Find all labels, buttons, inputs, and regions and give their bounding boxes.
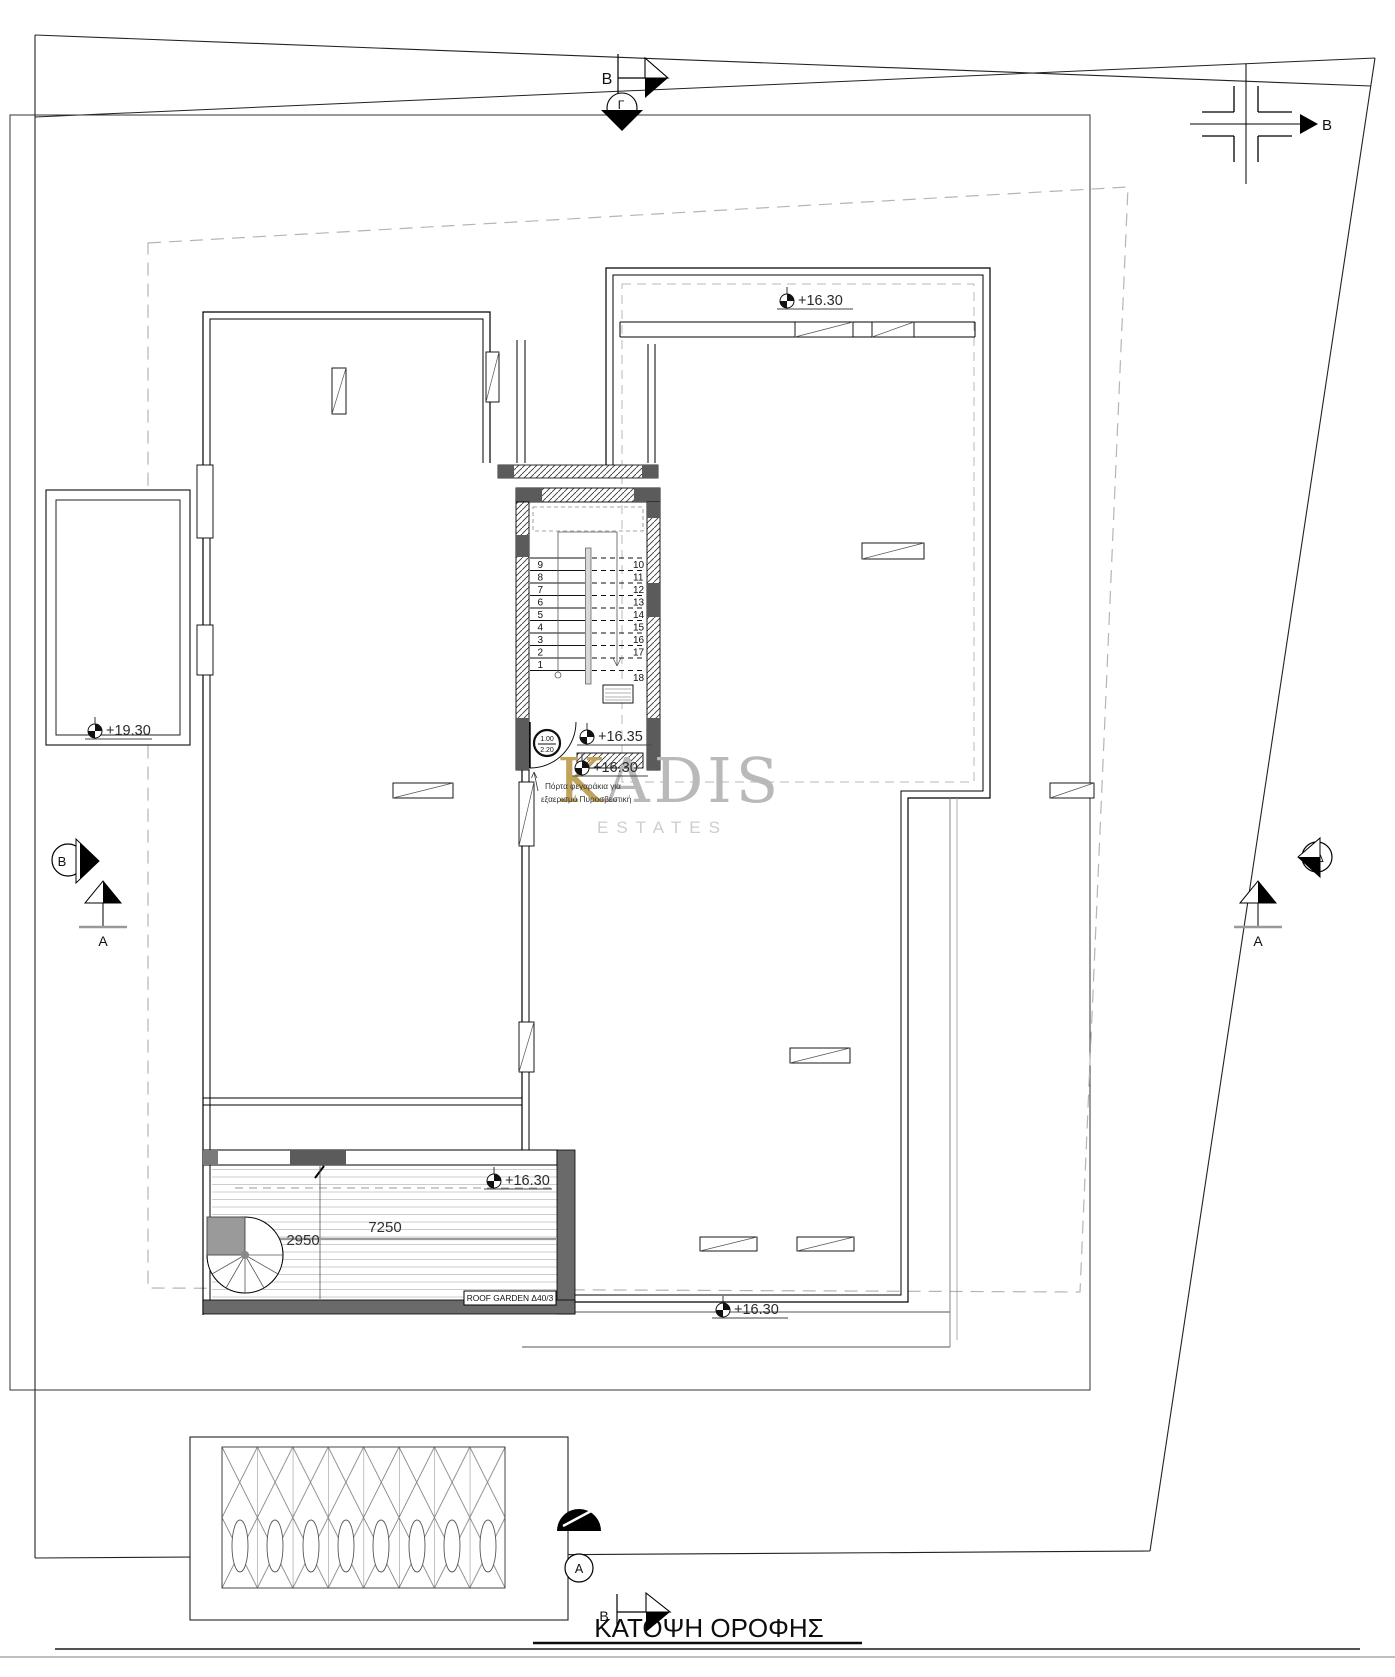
spiral-stair (207, 1217, 283, 1293)
level-value: +19.30 (106, 723, 151, 739)
roof-vent (797, 1237, 854, 1251)
watermark-letter: K (557, 744, 605, 817)
roof-garden-label-text: ROOF GARDEN Δ40/3 (467, 1293, 554, 1303)
roof-vent (1050, 783, 1094, 798)
stair-number: 3 (537, 635, 543, 646)
dim-depth: 2950 (286, 1232, 319, 1249)
section-letter: B (599, 1608, 608, 1624)
roof-vent (872, 322, 914, 337)
stair-number: 18 (633, 673, 645, 684)
stair-number: 7 (537, 585, 543, 596)
section-marker-east-delta: Δ (1298, 838, 1332, 877)
stair-number: 17 (633, 648, 645, 659)
stair-number: 14 (633, 610, 645, 621)
watermark-subtitle: ESTATES (597, 818, 728, 837)
stair-number: 15 (633, 623, 645, 634)
stair-number: 12 (633, 585, 645, 596)
roof-garden-label: ROOF GARDEN Δ40/3 (464, 1291, 556, 1305)
section-letter: A (1253, 933, 1263, 949)
roof-vent (393, 783, 453, 798)
door-note-line2: εξαερισμό Πυροσβεστική (541, 795, 632, 804)
level-value: +16.30 (505, 1173, 550, 1189)
roof-plan-sheet: 9 8 7 6 5 4 3 2 1 10 11 12 13 14 15 16 1… (0, 0, 1395, 1677)
section-letter: B (58, 854, 67, 869)
sheet-title: ΚΑΤΟΨΗ ΟΡΟΦΗΣ (533, 1613, 862, 1643)
roof-vent (795, 322, 853, 337)
level-value: +16.35 (598, 729, 643, 745)
stair-number: 2 (537, 648, 543, 659)
stair-number: 10 (633, 560, 645, 571)
section-letter: A (575, 1562, 584, 1576)
stair-number: 16 (633, 635, 645, 646)
level-value: +16.30 (798, 293, 843, 309)
watermark-brand: KADIS (557, 744, 782, 817)
roof-vent (700, 1237, 757, 1251)
section-letter: A (98, 933, 108, 949)
elevation-marker: +16.35 (577, 723, 652, 745)
elevation-marker: +16.30 (712, 1296, 788, 1318)
stair-number: 1 (537, 660, 543, 671)
section-letter: Γ (618, 98, 625, 112)
door-lintel (290, 1150, 346, 1165)
door-width: 1.00 (540, 736, 554, 743)
stair-number: 11 (633, 573, 644, 584)
lower-terrace-edges (522, 798, 957, 1347)
section-letter: B (602, 71, 613, 88)
section-marker-west-b: B (52, 839, 99, 883)
roof-vent (332, 368, 346, 414)
stair-number: 9 (537, 560, 543, 571)
sheet-title-text: ΚΑΤΟΨΗ ΟΡΟΦΗΣ (594, 1613, 824, 1643)
stair-core: 9 8 7 6 5 4 3 2 1 10 11 12 13 14 15 16 1… (498, 340, 660, 770)
level-value: +16.30 (593, 760, 638, 776)
roof-plan-drawing: 9 8 7 6 5 4 3 2 1 10 11 12 13 14 15 16 1… (0, 0, 1395, 1677)
section-marker-top: B Γ (601, 54, 668, 131)
door-height: 2.20 (540, 747, 554, 754)
watermark-rest: ADIS (604, 744, 782, 817)
roof-vent (519, 782, 534, 846)
section-letter: B (1322, 117, 1332, 134)
level-value: +16.30 (734, 1302, 779, 1318)
section-marker-east-a: A (1234, 881, 1282, 949)
stair-number: 13 (633, 598, 645, 609)
pergola (190, 1437, 568, 1620)
stair-number: 8 (537, 573, 543, 584)
roof-vent (519, 1022, 534, 1072)
drawing-frame (0, 115, 1395, 1657)
roof-vent (862, 543, 924, 559)
planter (46, 490, 190, 745)
dim-width: 7250 (368, 1219, 401, 1236)
stair-number: 5 (537, 610, 543, 621)
elevation-marker: +16.30 (777, 287, 853, 309)
section-marker-west-a: A (79, 881, 127, 949)
door-note-line1: Πόρτα φεγαράκια για (545, 782, 621, 791)
roof-vent (790, 1048, 850, 1063)
stair-number: 4 (537, 623, 543, 634)
stair-number: 6 (537, 598, 543, 609)
roof-vent (486, 352, 499, 402)
